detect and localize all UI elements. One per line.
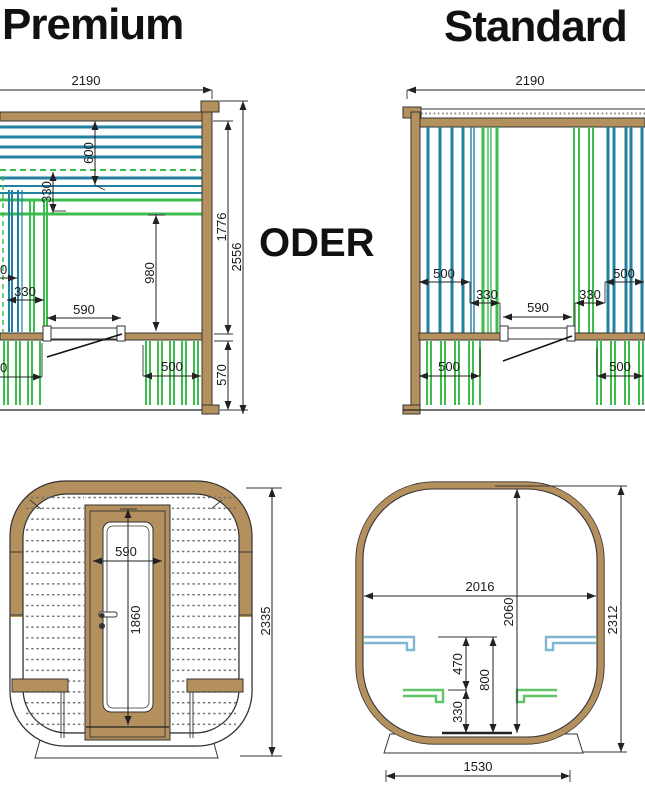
dim-label: 2190 [516,73,545,88]
dim-label: 590 [527,300,549,315]
technical-drawing-canvas: 2190 600 330 0 330 980 590 0 500 [0,0,645,807]
dim-label: 1530 [464,759,493,774]
dim-label: 330 [14,284,36,299]
dim-label: 590 [73,302,95,317]
standard-title: Standard [444,2,627,52]
dim-label: 500 [609,359,631,374]
dim-label: 330 [579,287,601,302]
standard-bench-band-left [419,333,500,340]
dim-label: 0 [0,262,7,277]
dim-label: 1776 [214,213,229,242]
dim-label: 330 [476,287,498,302]
standard-step-slab [508,328,567,339]
dim-label: 2060 [501,598,516,627]
door-handle-rose-icon [99,613,104,618]
oder-label: ODER [259,221,375,266]
dim-label: 600 [81,142,96,164]
standard-bench-band-right [575,333,645,340]
standard-green-slats-right [574,127,593,333]
dim-label: 980 [142,262,157,284]
dim-label: 2190 [72,73,101,88]
standard-green-slats-left-thin [488,127,491,333]
dim-label: 470 [450,653,465,675]
dim-label: 570 [214,364,229,386]
standard-elevation: 2190 500 330 590 330 500 500 500 [403,73,645,414]
premium-foot [202,405,219,414]
front-bench-right [187,679,243,692]
door-lock-icon [99,623,105,629]
premium-left-teal-verticals [9,190,18,332]
premium-step-slab [51,328,117,339]
standard-step-cap-right [567,326,575,341]
dim-label: 500 [161,359,183,374]
dim-label: 500 [438,359,460,374]
dim-label: 330 [39,181,54,203]
premium-under-bench-slats-left [4,341,40,405]
dim-label: 2335 [258,607,273,636]
dim-label: 2556 [229,243,244,272]
premium-right-post [202,112,212,410]
front-wall-dots-top [85,496,170,505]
front-wall-dots-right [172,496,236,732]
dim-label: 500 [433,266,455,281]
standard-door-swing-line [503,336,572,361]
front-door-view: 590 1860 2335 [10,481,282,758]
standard-blue-slats-right [608,127,642,333]
standard-green-slats-left [483,127,497,333]
premium-left-green-verticals [30,201,47,332]
cross-section-view: 2016 2060 2312 470 330 800 1530 [356,482,627,782]
standard-blue-slats-left-thin [471,127,474,333]
dim-label: 330 [450,701,465,723]
premium-title: Premium [2,0,183,50]
dim-label: 1860 [128,606,143,635]
dim-label: 2016 [466,579,495,594]
drawing-sheet: 2190 600 330 0 330 980 590 0 500 [0,0,645,807]
dim-label: 0 [0,360,7,375]
front-wall-dots-left [26,496,84,732]
premium-step-cap-left [43,326,51,341]
standard-roof-beam [419,118,645,127]
standard-left-post [411,112,420,410]
premium-roof-beam [0,112,202,121]
premium-roof-cap [201,101,219,112]
section-ring-outer [356,482,604,744]
dim-label: 2312 [605,606,620,635]
front-bench-left [12,679,68,692]
dim-label: 800 [477,669,492,691]
standard-blue-slats-left [428,127,463,333]
standard-step-cap-left [500,326,508,341]
dim-label: 500 [613,266,635,281]
premium-elevation: 2190 600 330 0 330 980 590 0 500 [0,73,248,414]
premium-teal-slats-thin [0,186,202,193]
dim-label: 590 [115,544,137,559]
